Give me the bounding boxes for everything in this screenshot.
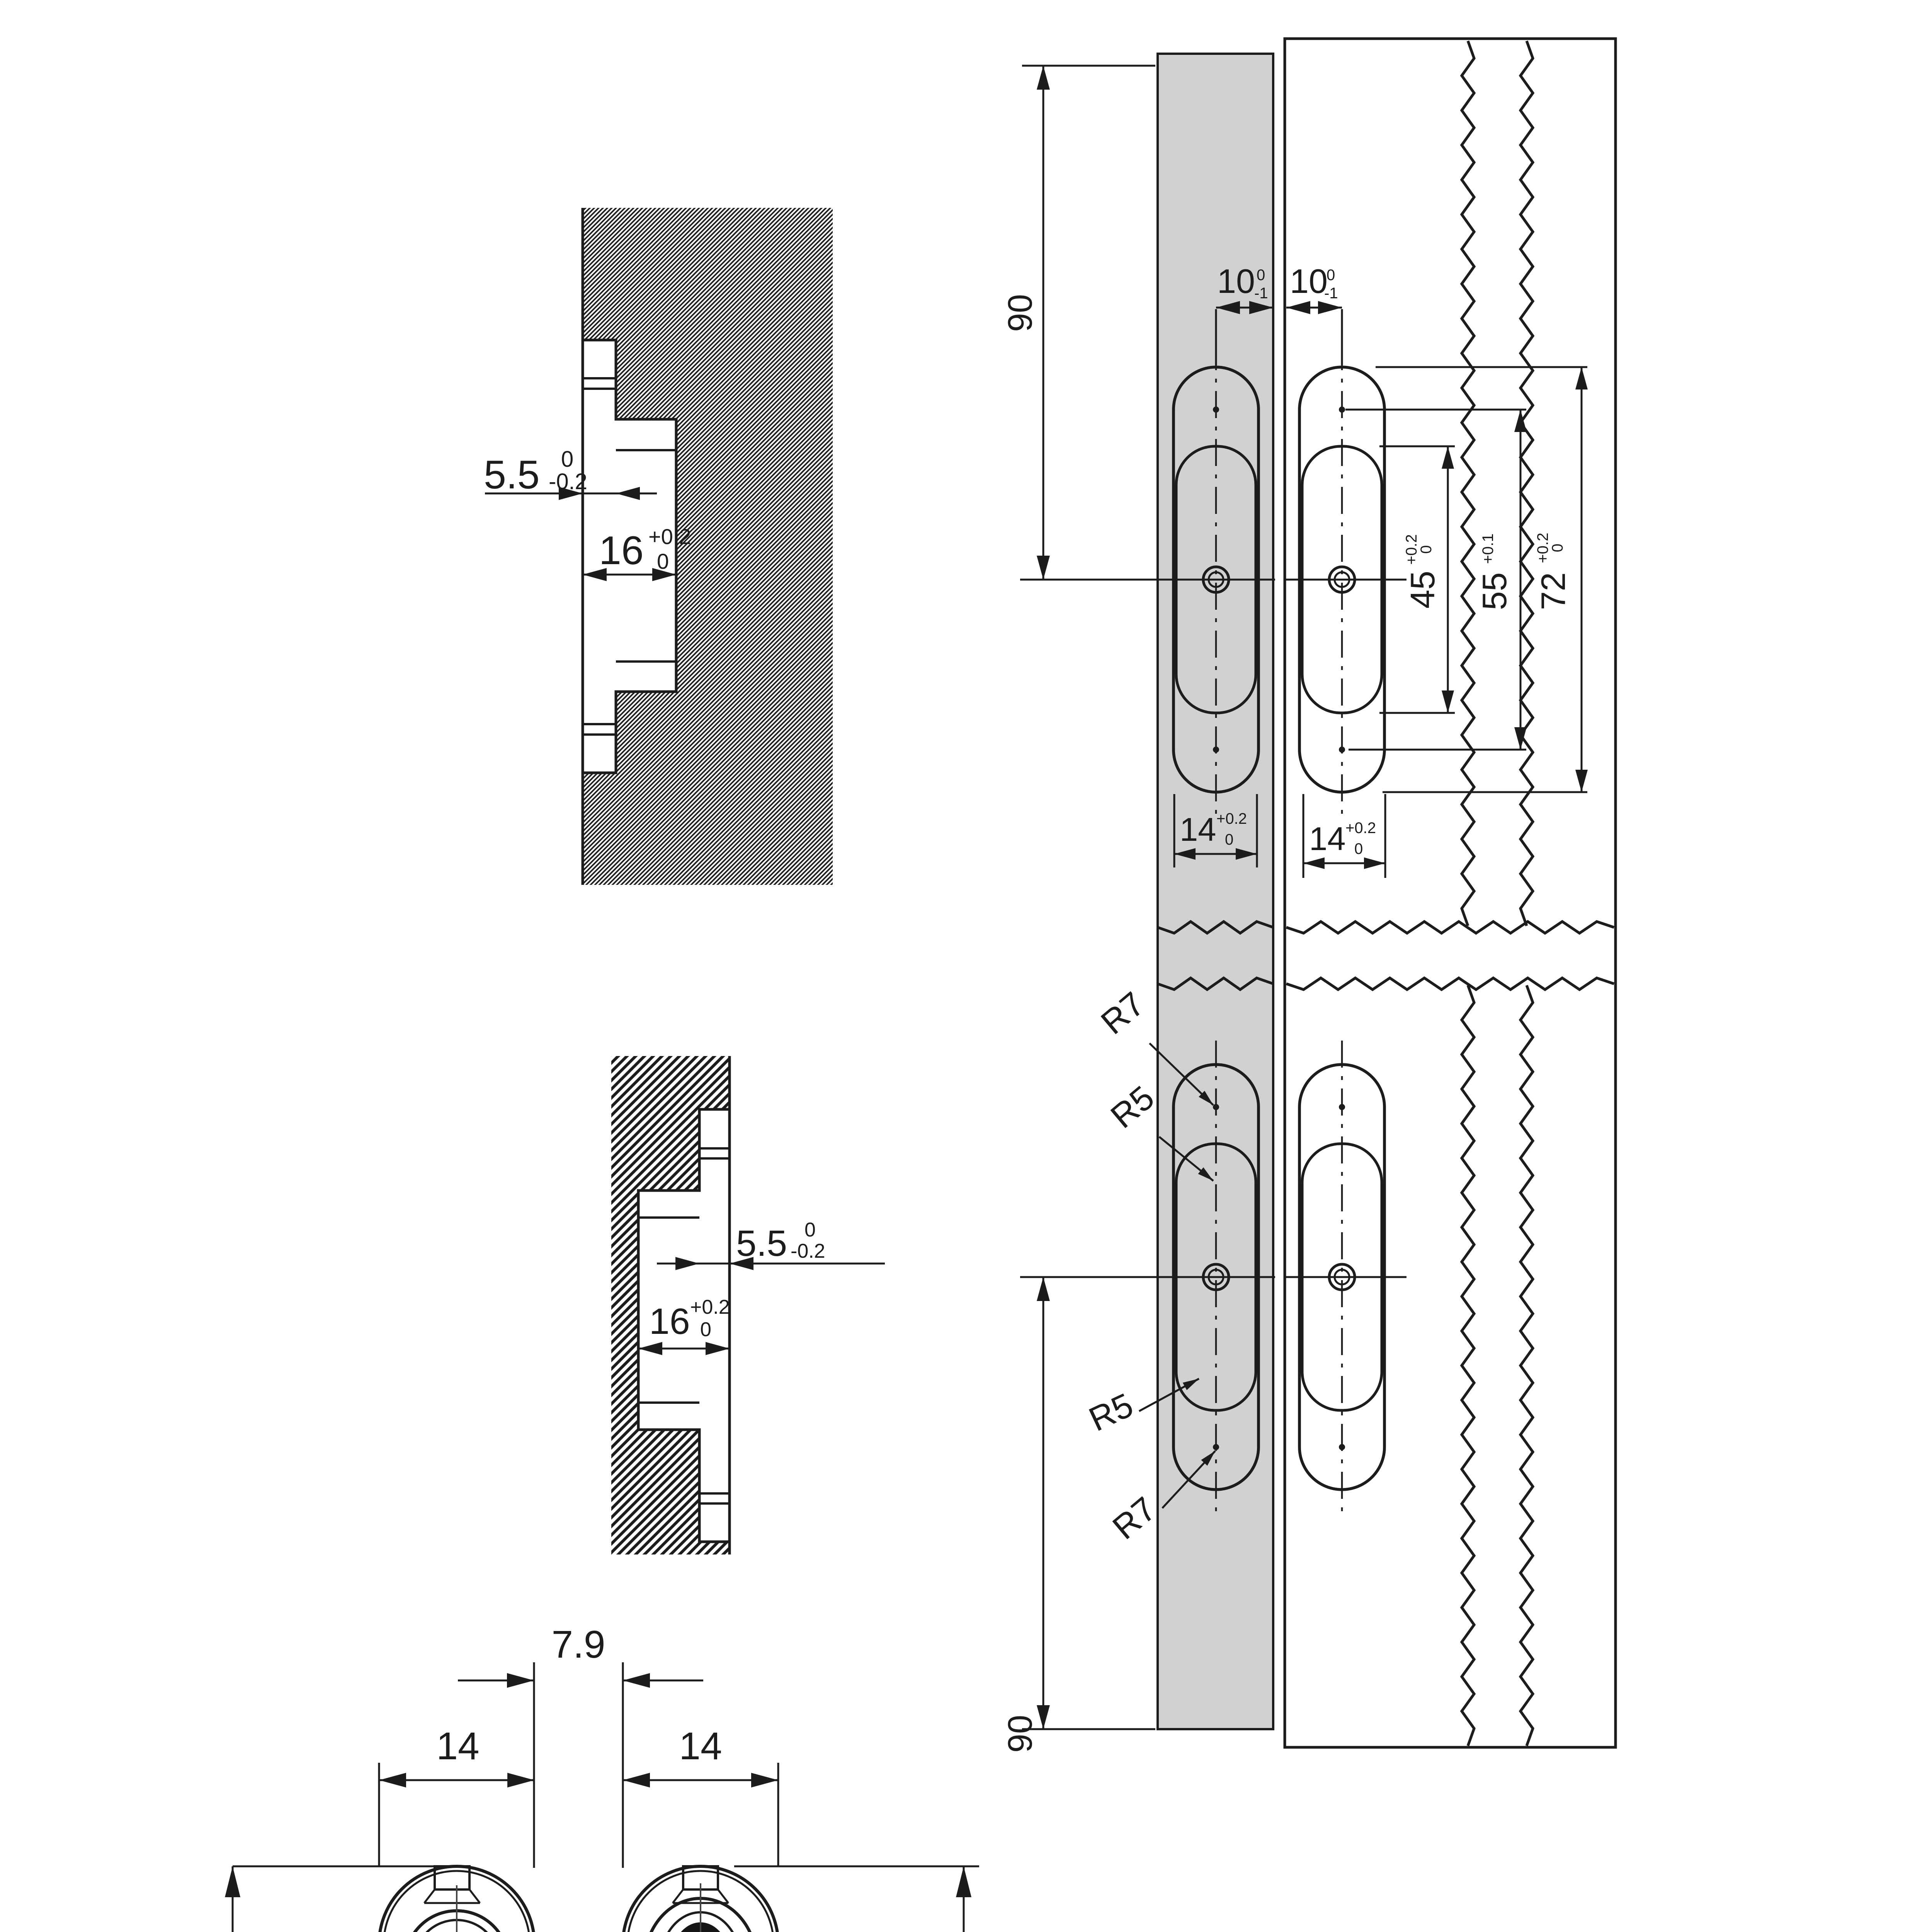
svg-text:5.5: 5.5 <box>736 1223 787 1264</box>
svg-text:-1: -1 <box>1324 285 1338 302</box>
svg-text:10: 10 <box>1217 262 1255 300</box>
svg-text:0: 0 <box>1327 267 1335 284</box>
svg-text:0: 0 <box>1354 840 1363 857</box>
svg-text:10: 10 <box>1290 262 1328 300</box>
svg-text:+0.2: +0.2 <box>648 524 691 549</box>
svg-text:5.5: 5.5 <box>484 452 540 497</box>
svg-text:-1: -1 <box>1254 285 1268 302</box>
svg-text:0: 0 <box>1549 544 1566 552</box>
svg-text:0: 0 <box>700 1318 711 1341</box>
svg-text:0: 0 <box>1225 831 1233 848</box>
svg-text:+0.2: +0.2 <box>690 1296 730 1318</box>
svg-text:14: 14 <box>1309 821 1346 857</box>
svg-text:45: 45 <box>1403 571 1442 609</box>
svg-text:0: 0 <box>561 447 573 472</box>
svg-text:0: 0 <box>804 1219 816 1241</box>
svg-text:72: 72 <box>1534 572 1572 610</box>
svg-text:+0.1: +0.1 <box>1480 534 1497 564</box>
svg-text:+0.2: +0.2 <box>1345 820 1376 837</box>
svg-text:14: 14 <box>436 1725 479 1768</box>
svg-text:0: 0 <box>1257 267 1265 284</box>
svg-text:-0.2: -0.2 <box>791 1240 825 1262</box>
svg-text:14: 14 <box>679 1725 722 1768</box>
svg-text:0: 0 <box>1418 545 1435 554</box>
svg-text:90: 90 <box>1001 294 1039 332</box>
svg-text:7.9: 7.9 <box>551 1623 605 1666</box>
svg-text:90: 90 <box>1001 1715 1039 1753</box>
svg-text:14: 14 <box>1180 811 1216 848</box>
svg-text:16: 16 <box>599 528 644 573</box>
svg-text:16: 16 <box>649 1301 690 1342</box>
svg-text:0: 0 <box>657 549 669 573</box>
svg-text:55: 55 <box>1475 572 1514 610</box>
svg-text:+0.2: +0.2 <box>1216 810 1247 827</box>
svg-text:-0.2: -0.2 <box>549 469 587 494</box>
